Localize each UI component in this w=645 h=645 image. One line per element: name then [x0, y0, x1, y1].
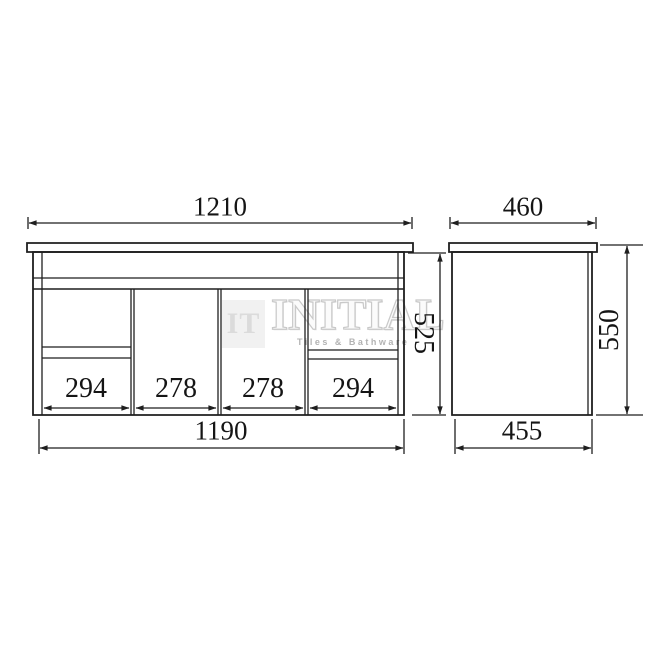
section-width-label-3: 278 [242, 375, 284, 403]
front-bottom-width-label: 1190 [195, 418, 248, 445]
side-bottom-width-label: 455 [502, 418, 543, 445]
side-top-width-label: 460 [503, 194, 544, 221]
technical-drawing [0, 0, 645, 645]
section-width-label-2: 278 [155, 375, 197, 403]
section-width-label-4: 294 [332, 375, 374, 403]
side-height-label: 550 [596, 309, 624, 351]
section-width-label-1: 294 [65, 375, 107, 403]
vanity-dimension-diagram: IT INITIAL Tiles & Bathware [0, 0, 645, 645]
front-height-label: 525 [409, 312, 437, 354]
front-top-width-label: 1210 [193, 194, 247, 221]
